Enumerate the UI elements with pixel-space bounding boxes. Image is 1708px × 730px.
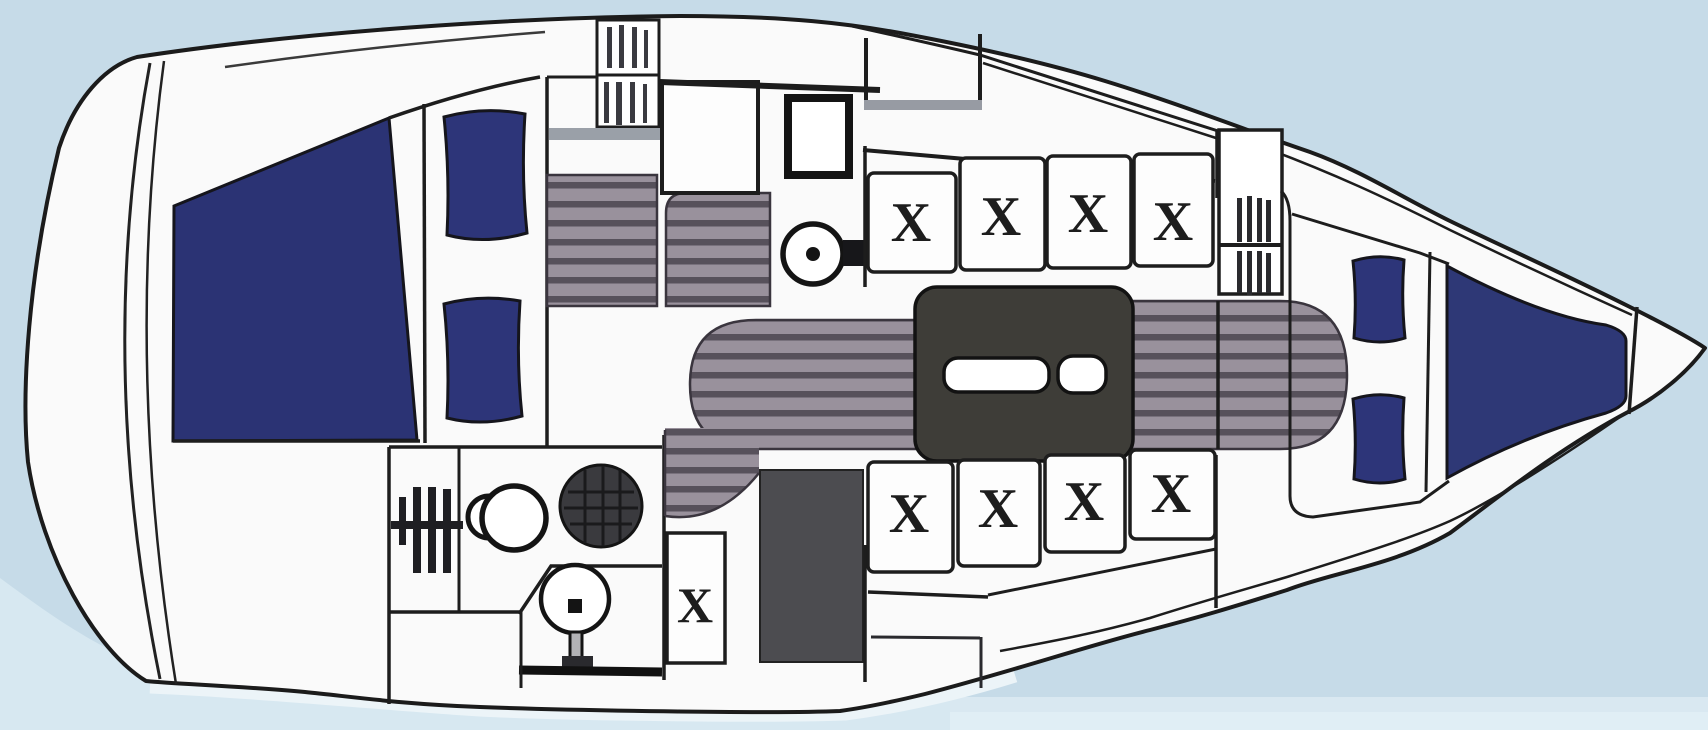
- svg-text:X: X: [1153, 191, 1193, 253]
- svg-text:X: X: [1068, 183, 1108, 245]
- svg-text:X: X: [1151, 463, 1191, 525]
- svg-text:X: X: [978, 478, 1018, 540]
- svg-text:X: X: [677, 577, 713, 633]
- svg-text:X: X: [889, 483, 929, 545]
- svg-text:X: X: [1064, 471, 1104, 533]
- svg-text:X: X: [981, 186, 1021, 248]
- svg-text:X: X: [891, 192, 931, 254]
